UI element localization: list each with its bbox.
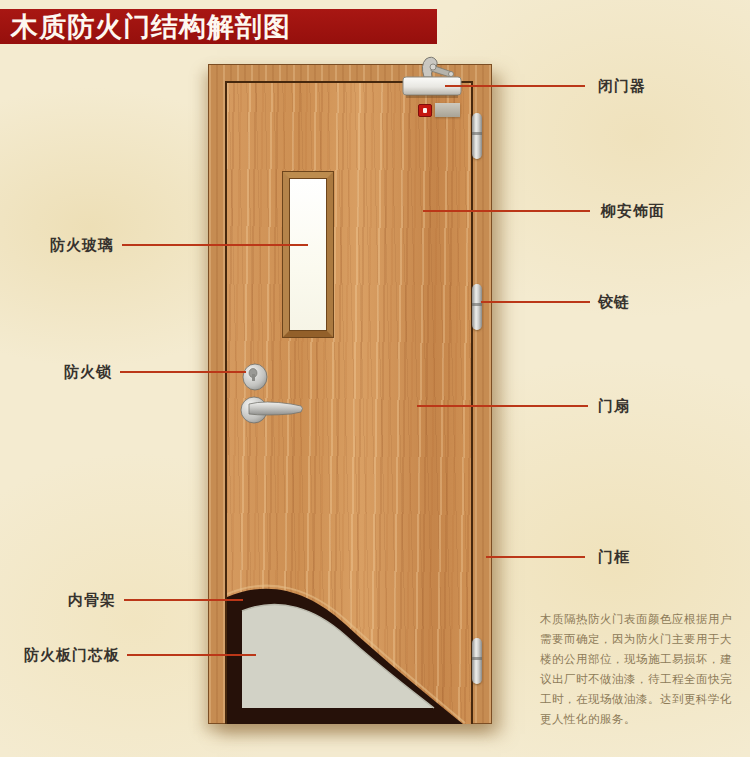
hinge-knuckle-gap: [472, 132, 482, 135]
alarm-indicator: [418, 104, 432, 117]
leader-door-leaf: [417, 405, 588, 407]
note-line: 更人性化的服务。: [540, 709, 720, 729]
diagram-canvas: 木质防火门结构解剖图: [0, 0, 750, 757]
label-veneer: 柳安饰面: [601, 202, 665, 221]
hinge-knuckle-gap: [472, 303, 482, 306]
hinge-knuckle-gap: [472, 657, 482, 660]
note-line: 工时，在现场做油漆。达到更科学化: [540, 689, 720, 709]
door-closer-graphic: [394, 55, 474, 105]
page-title: 木质防火门结构解剖图: [0, 9, 291, 45]
note-line: 木质隔热防火门表面颜色应根据用户: [540, 609, 720, 629]
description-note: 木质隔热防火门表面颜色应根据用户 需要而确定，因为防火门主要用于大 楼的公用部位…: [540, 609, 720, 729]
fire-lock-graphic: [235, 358, 335, 428]
label-core-board: 防火板门芯板: [0, 646, 120, 665]
leader-hinge: [481, 301, 590, 303]
title-banner: 木质防火门结构解剖图: [0, 9, 437, 44]
label-fire-glass: 防火玻璃: [0, 236, 114, 255]
door-leaf: [225, 81, 473, 724]
hinge-middle: [472, 284, 482, 330]
name-plate: [435, 103, 460, 117]
hinge-bottom: [472, 638, 482, 684]
door-frame: [208, 64, 492, 724]
label-inner-skeleton: 内骨架: [0, 591, 116, 610]
lever-handle: [249, 402, 303, 415]
label-door-closer: 闭门器: [598, 77, 646, 96]
label-hinge: 铰链: [598, 293, 630, 312]
cutaway-section: [227, 577, 471, 724]
leader-core-board: [127, 654, 256, 656]
leader-door-frame: [486, 556, 585, 558]
label-door-frame: 门框: [598, 548, 630, 567]
leader-fire-glass: [122, 244, 308, 246]
note-line: 楼的公用部位，现场施工易损坏，建: [540, 649, 720, 669]
hinge-top: [472, 113, 482, 159]
label-door-leaf: 门扇: [598, 397, 630, 416]
note-line: 需要而确定，因为防火门主要用于大: [540, 629, 720, 649]
leader-inner-skeleton: [124, 599, 243, 601]
fire-glass-window: [283, 172, 333, 337]
note-line: 议出厂时不做油漆，待工程全面快完: [540, 669, 720, 689]
leader-veneer: [423, 210, 590, 212]
leader-door-closer: [445, 85, 585, 87]
leader-fire-lock: [120, 371, 246, 373]
label-fire-lock: 防火锁: [0, 363, 112, 382]
